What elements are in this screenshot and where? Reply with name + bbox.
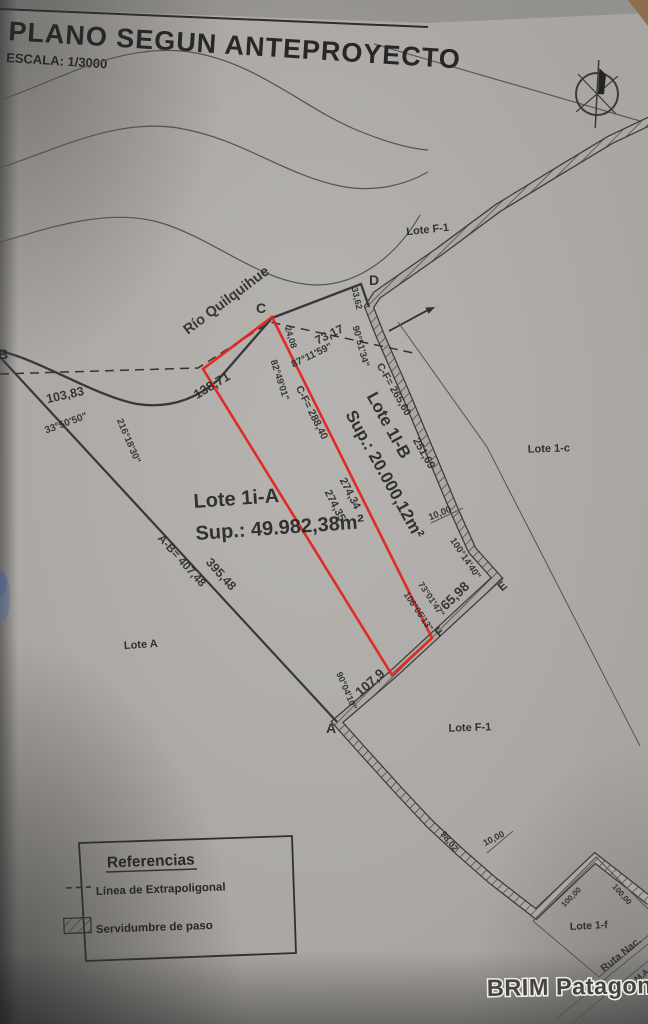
plan-canvas: PLANO SEGUN ANTEPROYECTO ESCALA: 1/3000 … xyxy=(0,0,648,1024)
lot-name: Lote 1-c xyxy=(528,442,571,455)
dashed-line-icon xyxy=(66,887,91,888)
lot-name: Lote F-1 xyxy=(448,721,491,734)
lot-name: Lote 1-f xyxy=(570,919,609,933)
hatch-band-icon xyxy=(64,918,92,934)
point-c: C xyxy=(256,300,266,316)
legend-title: Referencias xyxy=(107,851,195,871)
survey-plan-photo: PLANO SEGUN ANTEPROYECTO ESCALA: 1/3000 … xyxy=(0,0,648,1024)
paper-background xyxy=(0,0,648,1024)
shadow-left-edge xyxy=(0,0,18,1024)
watermark: BRIM Patagonia xyxy=(487,972,648,1001)
point-b: B xyxy=(0,346,8,362)
shadow-bottom-right xyxy=(0,0,648,1024)
point-d: D xyxy=(369,272,379,288)
point-a: A xyxy=(326,720,336,736)
lot-name: Lote A xyxy=(124,638,159,652)
